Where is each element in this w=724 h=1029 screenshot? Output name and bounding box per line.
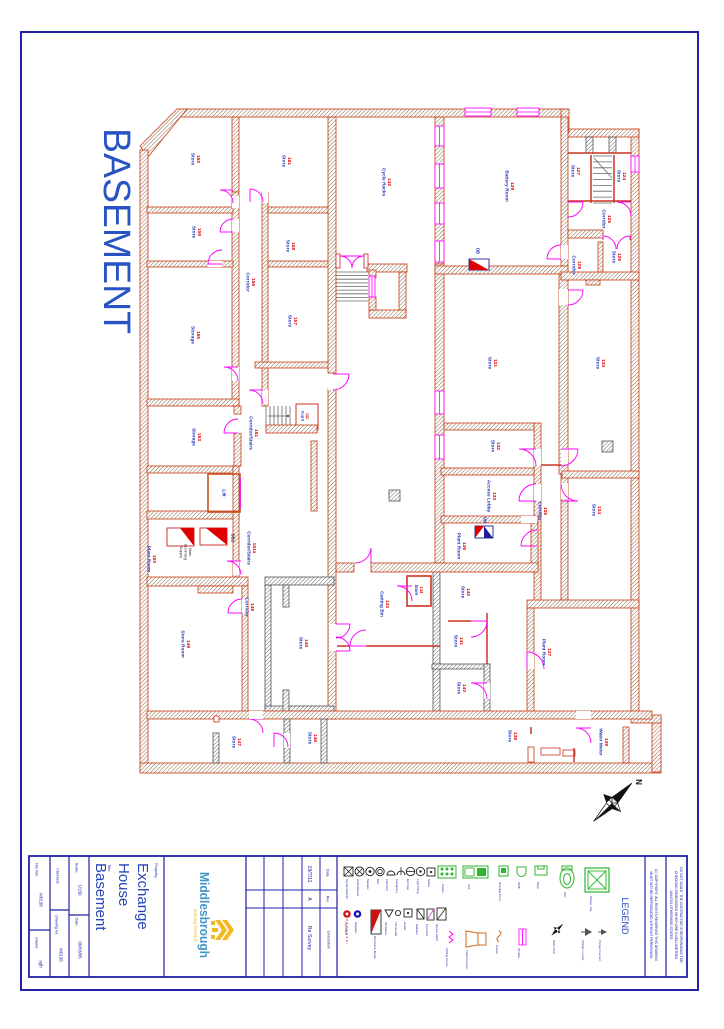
svg-text:Emergency: Emergency — [395, 879, 399, 894]
svg-text:Shower Tray: Shower Tray — [589, 896, 593, 912]
svg-text:Pipe Duct: Pipe Duct — [425, 924, 429, 936]
svg-text:DB: DB — [483, 517, 488, 523]
svg-text:Storage: Storage — [190, 326, 196, 344]
svg-text:Basin: Basin — [536, 882, 540, 889]
svg-text:Exchange: Exchange — [134, 863, 151, 930]
svg-text:Corridor: Corridor — [244, 597, 250, 616]
svg-text:Store: Store — [298, 637, 304, 650]
svg-text:Plant Room: Plant Room — [146, 546, 152, 573]
svg-text:Exit Sign: Exit Sign — [406, 879, 410, 890]
svg-text:Lift: Lift — [221, 489, 226, 497]
svg-text:131: 131 — [492, 359, 498, 367]
svg-text:160: 160 — [195, 155, 201, 163]
svg-text:152: 152 — [305, 413, 309, 419]
svg-text:161: 161 — [286, 157, 292, 165]
svg-text:Storage: Storage — [191, 428, 197, 446]
svg-text:MUST NOT BE REPRODUCED WITHOUT: MUST NOT BE REPRODUCED WITHOUT PERMISSIO… — [649, 871, 653, 959]
svg-text:Store: Store — [507, 730, 513, 743]
svg-text:Checked:: Checked: — [56, 868, 60, 884]
svg-text:Corridor: Corridor — [245, 272, 251, 291]
svg-text:House: House — [115, 863, 132, 906]
svg-text:Store: Store — [190, 153, 196, 166]
svg-text:134: 134 — [596, 506, 602, 514]
svg-text:Corridor: Corridor — [537, 501, 543, 520]
svg-text:Date:: Date: — [75, 917, 79, 926]
svg-text:Store: Store — [595, 357, 601, 370]
svg-text:Smoke Detector: Smoke Detector — [345, 879, 349, 899]
svg-text:Change in Level: Change in Level — [581, 940, 585, 961]
svg-text:08/03/05: 08/03/05 — [78, 941, 83, 959]
svg-text:Store Room: Store Room — [180, 630, 186, 657]
svg-text:Window: Window — [517, 948, 521, 959]
svg-text:132: 132 — [495, 442, 501, 450]
svg-text:130: 130 — [600, 359, 606, 367]
svg-text:142: 142 — [386, 178, 392, 186]
svg-text:BASEMENT: BASEMENT — [95, 128, 137, 334]
svg-text:Store: Store — [281, 155, 287, 168]
svg-text:Distribution Board: Distribution Board — [373, 936, 377, 959]
svg-text:Cup'd: Cup'd — [301, 411, 305, 422]
svg-text:Store: Store — [460, 586, 466, 599]
svg-text:Call Point: Call Point — [385, 879, 389, 891]
svg-text:148: 148 — [249, 603, 255, 611]
svg-text:North Point: North Point — [552, 940, 556, 954]
svg-text:Heater: Heater — [403, 922, 407, 930]
svg-text:153: 153 — [196, 433, 202, 441]
svg-text:Switch: Switch — [427, 879, 431, 888]
svg-text:(C) COPYRIGHT. ALL RIGHTS RESE: (C) COPYRIGHT. ALL RIGHTS RESERVED THIS … — [654, 869, 658, 961]
svg-text:Corridor: Corridor — [601, 209, 607, 228]
svg-text:Store: Store — [591, 504, 597, 517]
svg-text:Access Hatch: Access Hatch — [435, 924, 439, 942]
svg-text:Light Fitting: Light Fitting — [416, 879, 420, 894]
svg-text:Battery Room: Battery Room — [504, 170, 510, 201]
svg-text:LEGEND: LEGEND — [620, 897, 630, 935]
svg-text:135: 135 — [542, 507, 548, 515]
svg-text:Fixed Furniture: Fixed Furniture — [465, 950, 469, 969]
svg-text:Store: Store — [456, 682, 462, 695]
svg-text:127: 127 — [575, 167, 581, 175]
svg-text:moving forward: moving forward — [192, 909, 198, 942]
svg-text:Store: Store — [453, 635, 459, 648]
svg-text:Access Lobby: Access Lobby — [486, 480, 492, 513]
svg-text:N: N — [634, 779, 643, 785]
svg-text:Drawing no:: Drawing no: — [55, 915, 59, 935]
svg-text:W.C.: W.C. — [563, 892, 567, 898]
svg-text:Ventilation: Ventilation — [384, 922, 388, 935]
svg-text:157: 157 — [292, 317, 298, 325]
svg-text:128: 128 — [576, 261, 582, 269]
svg-text:156: 156 — [250, 278, 256, 286]
svg-text:Cooker: Cooker — [441, 884, 445, 893]
svg-text:129: 129 — [509, 182, 515, 190]
svg-text:143: 143 — [384, 600, 390, 608]
svg-text:Store: Store — [285, 240, 291, 253]
svg-text:Store: Store — [611, 251, 617, 264]
svg-text:Rev: Rev — [326, 896, 330, 903]
svg-text:124: 124 — [621, 172, 627, 180]
svg-text:Curtain: Curtain — [495, 945, 499, 954]
svg-text:File Ref.: File Ref. — [35, 863, 39, 877]
svg-text:Cutting Bin: Cutting Bin — [379, 591, 385, 617]
svg-text:Store: Store — [487, 357, 493, 370]
svg-text:Heat Detector: Heat Detector — [356, 879, 360, 896]
svg-text:137: 137 — [546, 648, 552, 656]
svg-text:M0138: M0138 — [59, 948, 64, 962]
svg-text:Thermostat: Thermostat — [394, 922, 398, 936]
svg-text:Fire Alarm: Fire Alarm — [344, 922, 348, 935]
svg-text:A: A — [306, 897, 312, 901]
svg-text:159: 159 — [196, 228, 202, 236]
svg-text:142: 142 — [465, 588, 471, 596]
svg-text:Supply: Supply — [179, 546, 184, 558]
svg-text:Description: Description — [327, 931, 331, 949]
svg-text:Water Meter: Water Meter — [598, 728, 604, 755]
svg-text:Sounder: Sounder — [366, 879, 370, 890]
svg-text:125: 125 — [606, 215, 612, 223]
svg-text:DB: DB — [476, 248, 481, 254]
svg-text:Store: Store — [414, 585, 419, 596]
svg-text:Middlesbrough: Middlesbrough — [197, 872, 212, 958]
svg-text:Corridor/Stairs: Corridor/Stairs — [246, 531, 252, 565]
svg-text:Sink: Sink — [467, 884, 471, 890]
svg-text:Corridor: Corridor — [571, 255, 577, 274]
svg-text:DB1: DB1 — [231, 534, 236, 543]
svg-text:Store: Store — [570, 165, 576, 178]
svg-text:Store: Store — [191, 226, 197, 239]
svg-text:138: 138 — [512, 732, 518, 740]
svg-text:149: 149 — [185, 640, 191, 648]
svg-text:Primary Fire Exit: Primary Fire Exit — [598, 940, 602, 961]
svg-text:Plant Room: Plant Room — [456, 533, 462, 560]
svg-text:151: 151 — [253, 429, 259, 437]
svg-text:136: 136 — [461, 542, 467, 550]
svg-text:Store: Store — [307, 732, 313, 745]
svg-text:145: 145 — [303, 639, 309, 647]
svg-text:133: 133 — [491, 492, 497, 500]
svg-text:1/150: 1/150 — [78, 885, 83, 897]
svg-text:DO NOT SCALE. THE CONTRACTOR I: DO NOT SCALE. THE CONTRACTOR IS RESPONSI… — [679, 867, 683, 963]
svg-text:Plant Room: Plant Room — [541, 639, 547, 666]
svg-text:Date: Date — [326, 869, 330, 877]
svg-text:126: 126 — [616, 253, 622, 261]
svg-text:158: 158 — [290, 242, 296, 250]
svg-text:140: 140 — [461, 684, 467, 692]
svg-text:141: 141 — [458, 637, 464, 645]
svg-text:Drainage Point: Drainage Point — [498, 882, 502, 901]
svg-text:Store: Store — [616, 170, 622, 183]
svg-text:Folding Screen: Folding Screen — [445, 948, 449, 967]
svg-text:147: 147 — [236, 738, 242, 746]
svg-text:Store: Store — [287, 315, 293, 328]
svg-text:19/7/11: 19/7/11 — [306, 866, 312, 883]
svg-text:150: 150 — [151, 555, 157, 563]
svg-text:Radiator: Radiator — [415, 924, 419, 935]
svg-text:Scale:: Scale: — [75, 863, 79, 874]
svg-text:CHECKING DIMENSIONS WHICH ARE: CHECKING DIMENSIONS WHICH ARE IN MILLIME… — [674, 871, 678, 960]
svg-text:Drawn:: Drawn: — [35, 937, 39, 949]
svg-text:Store: Store — [231, 736, 237, 749]
svg-text:Re Survey: Re Survey — [306, 926, 312, 951]
svg-text:Corridor/Stairs: Corridor/Stairs — [248, 416, 254, 450]
svg-text:Basement: Basement — [92, 863, 109, 931]
svg-text:Store: Store — [490, 440, 496, 453]
svg-text:Property:: Property: — [154, 863, 158, 878]
svg-text:M0138: M0138 — [39, 893, 44, 907]
svg-text:Bell: Bell — [376, 879, 380, 884]
svg-text:Cycle Racks: Cycle Racks — [381, 168, 387, 197]
svg-text:151a: 151a — [251, 543, 257, 554]
svg-text:Repeater: Repeater — [354, 922, 358, 934]
svg-text:146: 146 — [312, 734, 318, 742]
svg-text:139: 139 — [603, 738, 609, 746]
svg-text:UNLESS OTHERWISE STATED: UNLESS OTHERWISE STATED — [669, 891, 673, 940]
svg-text:WHB: WHB — [517, 882, 521, 889]
svg-text:155: 155 — [195, 331, 201, 339]
svg-text:agh: agh — [39, 960, 44, 968]
